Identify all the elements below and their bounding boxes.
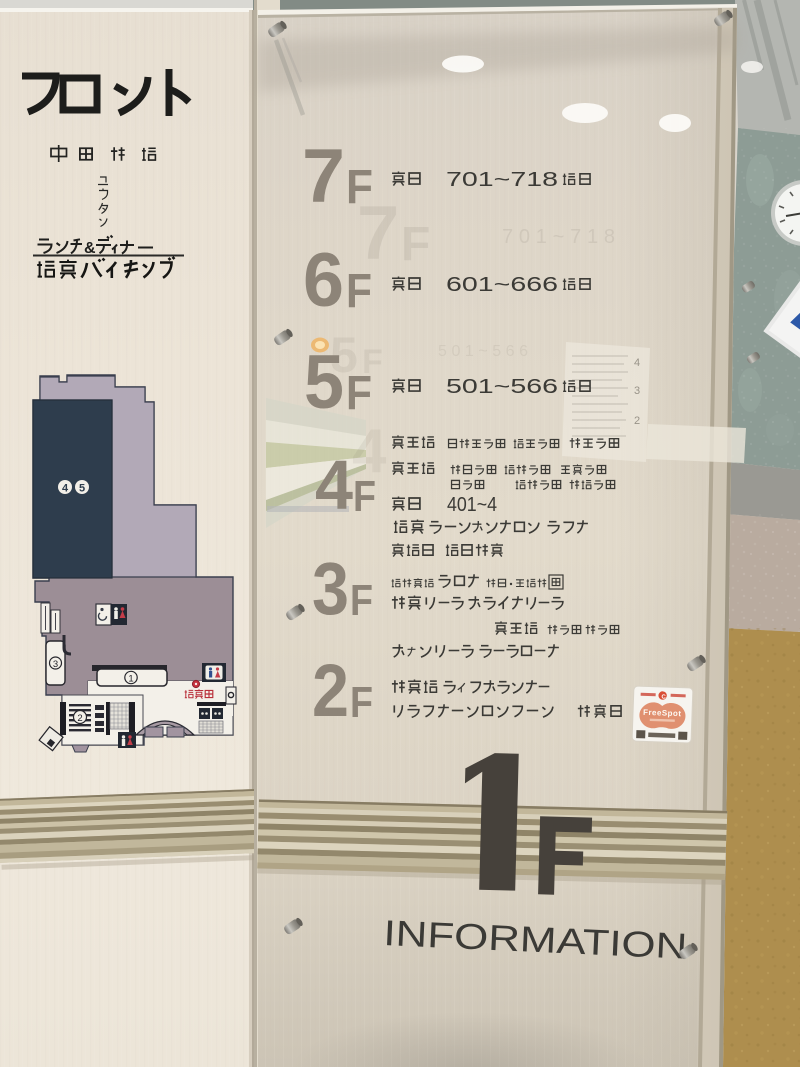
svg-text:701~718: 701~718 [446,169,558,191]
svg-text:601~666: 601~666 [446,274,558,296]
svg-text:701~718: 701~718 [502,226,615,248]
svg-text:3: 3 [312,547,349,630]
svg-text:3: 3 [53,659,58,670]
svg-text:F: F [346,367,372,420]
svg-text:4: 4 [62,483,69,495]
svg-text:FreeSpot: FreeSpot [643,708,682,718]
svg-text:2: 2 [634,415,640,427]
svg-text:4: 4 [315,446,353,524]
svg-text:2: 2 [312,649,349,732]
svg-text:401~4: 401~4 [447,494,497,516]
svg-text:F: F [401,218,430,271]
svg-text:1: 1 [128,674,133,685]
svg-text:5: 5 [304,340,344,425]
svg-text:&: & [84,240,96,257]
svg-text:F: F [346,265,372,318]
svg-text:501~566: 501~566 [446,376,558,398]
svg-text:3: 3 [634,385,640,397]
svg-text:F: F [350,678,373,727]
svg-text:F: F [346,161,373,214]
svg-text:F: F [353,472,376,521]
svg-text:4: 4 [634,357,640,369]
svg-text:5: 5 [79,483,85,495]
svg-text:F: F [350,576,373,625]
svg-text:6: 6 [303,238,344,323]
svg-text:2: 2 [77,713,82,724]
svg-text:7: 7 [302,134,345,219]
